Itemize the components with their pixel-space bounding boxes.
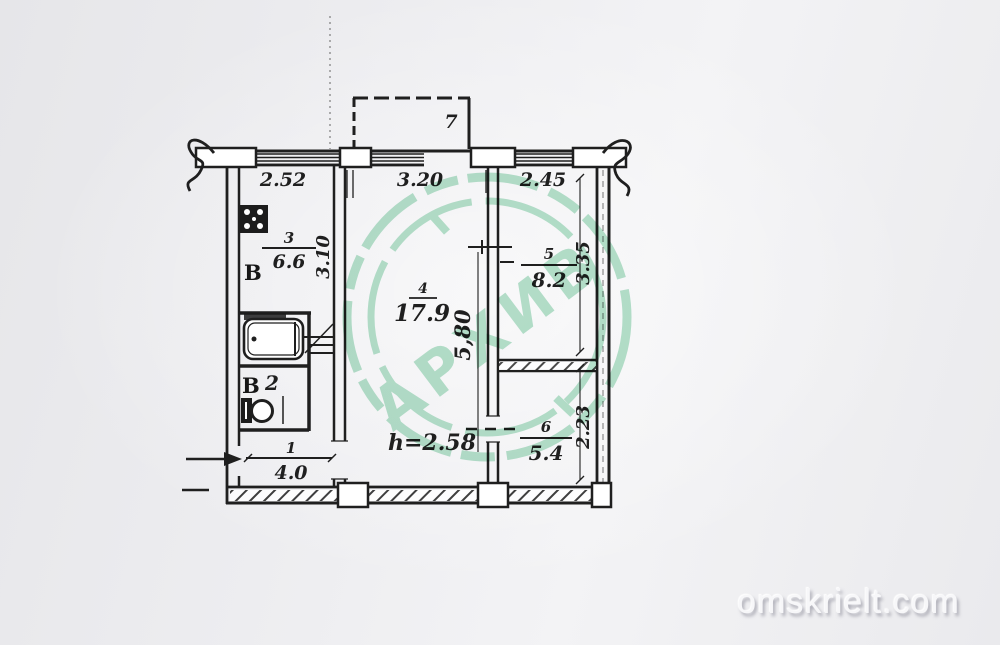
door-swing: [300, 324, 333, 353]
living-area: 17.9: [394, 300, 450, 327]
scanned-floorplan-page: 7: [0, 0, 1000, 645]
balcony-label: 7: [444, 111, 457, 133]
window-kitchen: [256, 154, 340, 165]
window-room5: [515, 154, 573, 165]
bathtub-icon: [244, 319, 303, 359]
wc-number: 2: [264, 371, 279, 395]
living-number: 4: [418, 281, 428, 297]
kitchen-area: 6.6: [272, 251, 305, 273]
window-living: [371, 154, 424, 165]
dim-kitchen-depth: 3.10: [313, 235, 334, 279]
site-watermark: omskrielt.com: [737, 583, 960, 622]
entrance-arrow: [182, 452, 242, 490]
bottom-wall-fill: [230, 490, 607, 501]
floorplan-drawing: 7: [0, 0, 1000, 645]
hall-area: 4.0: [274, 462, 307, 484]
hall-number: 1: [286, 439, 296, 457]
kitchen-vent-label: В: [244, 260, 262, 285]
stove-icon: [240, 205, 268, 233]
toilet-icon: [241, 396, 283, 424]
kitchen-number: 3: [284, 229, 294, 247]
dim-top-left: 2.52: [259, 169, 306, 191]
wc-vent-label: В: [242, 373, 260, 398]
